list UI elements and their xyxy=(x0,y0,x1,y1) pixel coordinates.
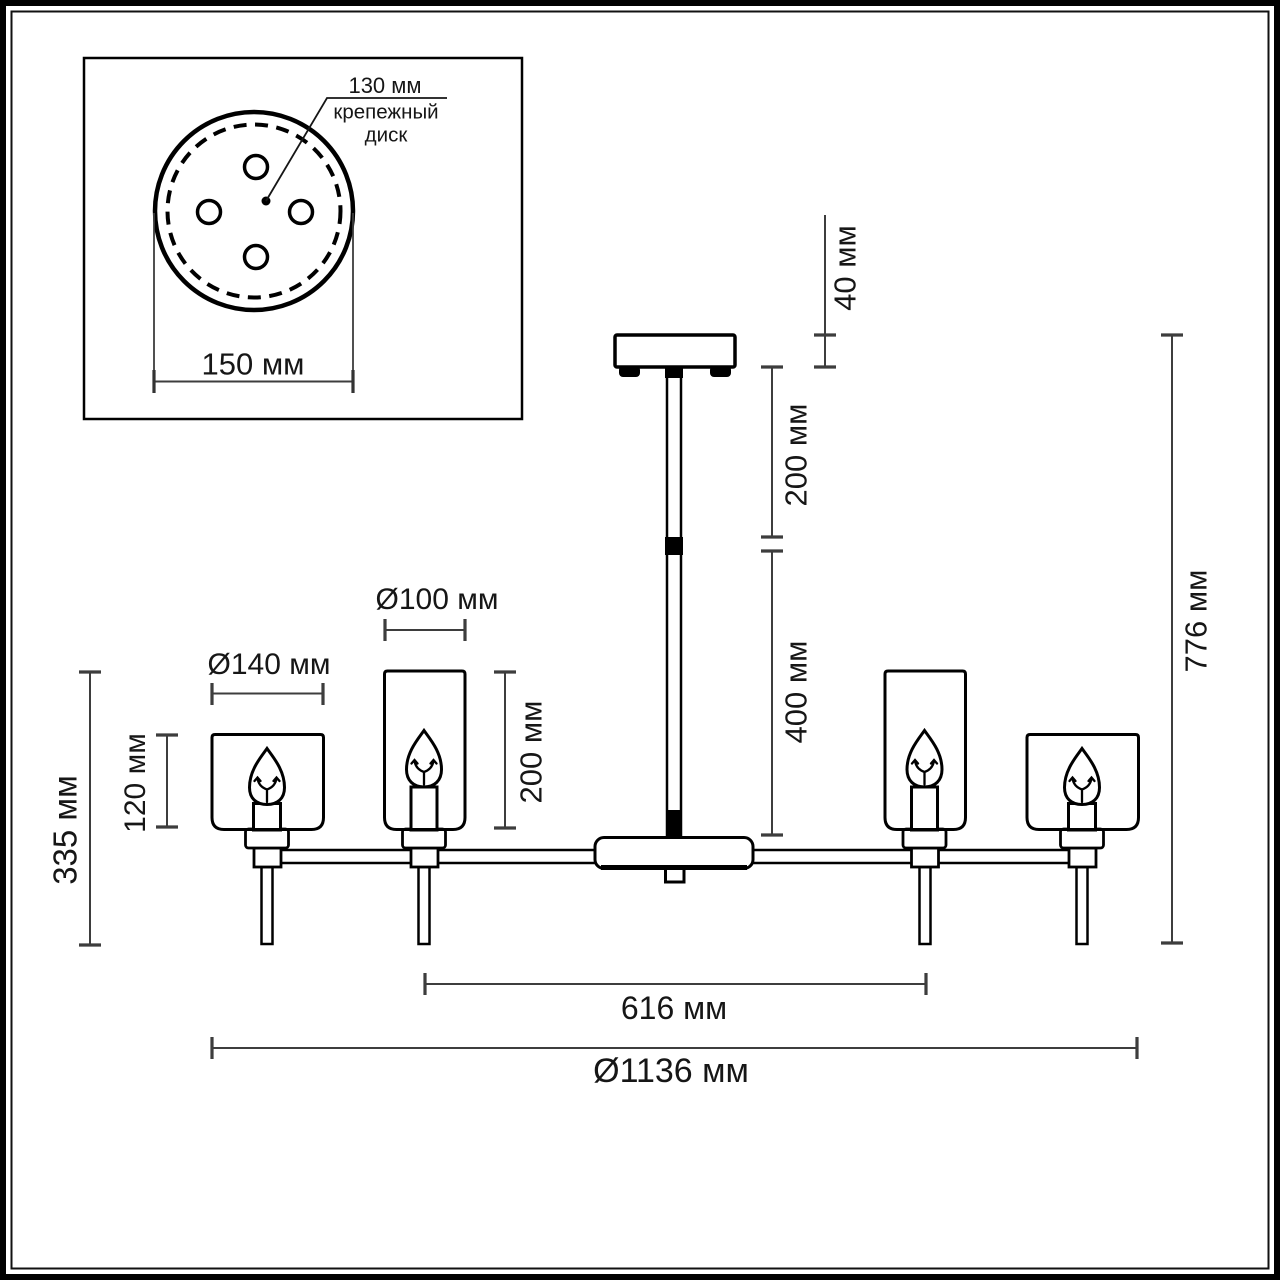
stem-rod xyxy=(667,367,681,838)
central-hub-tab xyxy=(666,869,685,883)
lamp-2 xyxy=(385,671,466,944)
lamp-4 xyxy=(1027,735,1139,945)
ceiling-canopy xyxy=(615,335,735,367)
stem-bottom-connector xyxy=(666,810,682,838)
candle-base xyxy=(1069,804,1096,831)
stem-middle-joint xyxy=(665,537,683,555)
socket-lower xyxy=(411,848,438,867)
candle-base xyxy=(411,787,437,830)
dim-label-140mm: Ø140 мм xyxy=(208,650,331,680)
dim-label-1136mm: Ø1136 мм xyxy=(593,1054,749,1088)
disk-name-label: крепежный диск xyxy=(333,101,438,146)
dim-label-120mm: 120 мм xyxy=(121,733,151,833)
lamp-3 xyxy=(885,671,966,944)
socket-upper xyxy=(246,829,289,848)
central-hub xyxy=(595,838,753,869)
dim-label-40mm: 40 мм xyxy=(830,225,861,311)
mounting-hole-bottom xyxy=(245,246,268,269)
dim-label-335mm: 335 мм xyxy=(49,775,82,885)
dim-label-200mm-rod: 200 мм xyxy=(781,404,812,507)
technical-drawing-canvas: 130 мм крепежный диск 150 мм Ø140 мм Ø10… xyxy=(0,0,1280,1280)
candle-base xyxy=(254,804,281,831)
mounting-hole-right xyxy=(290,201,313,224)
disk-name-line2: диск xyxy=(333,124,438,147)
hanging-rod xyxy=(419,867,430,944)
hanging-rod xyxy=(920,867,931,944)
dim-label-150mm: 150 мм xyxy=(202,349,305,380)
mounting-hole-left xyxy=(198,201,221,224)
dim-label-776mm: 776 мм xyxy=(1181,570,1212,673)
dim-label-616mm: 616 мм xyxy=(621,992,727,1024)
mounting-hole-top xyxy=(245,156,268,179)
canopy-foot-left xyxy=(619,366,640,377)
dim-label-130mm: 130 мм xyxy=(348,75,421,97)
socket-lower xyxy=(912,848,939,867)
dim-label-100mm: Ø100 мм xyxy=(376,585,499,615)
lamp-1 xyxy=(212,735,324,945)
disk-name-line1: крепежный xyxy=(333,101,438,124)
hanging-rod xyxy=(262,867,273,944)
socket-upper xyxy=(403,829,446,848)
candle-base xyxy=(912,787,938,830)
socket-upper xyxy=(903,829,946,848)
dim-label-400mm: 400 мм xyxy=(781,641,812,744)
chandelier-fixture xyxy=(212,335,1139,944)
socket-lower xyxy=(254,848,281,867)
hanging-rod xyxy=(1077,867,1088,944)
canopy-foot-right xyxy=(710,366,731,377)
socket-lower xyxy=(1069,848,1096,867)
dim-label-200mm-shade: 200 мм xyxy=(516,701,547,804)
socket-upper xyxy=(1061,829,1104,848)
